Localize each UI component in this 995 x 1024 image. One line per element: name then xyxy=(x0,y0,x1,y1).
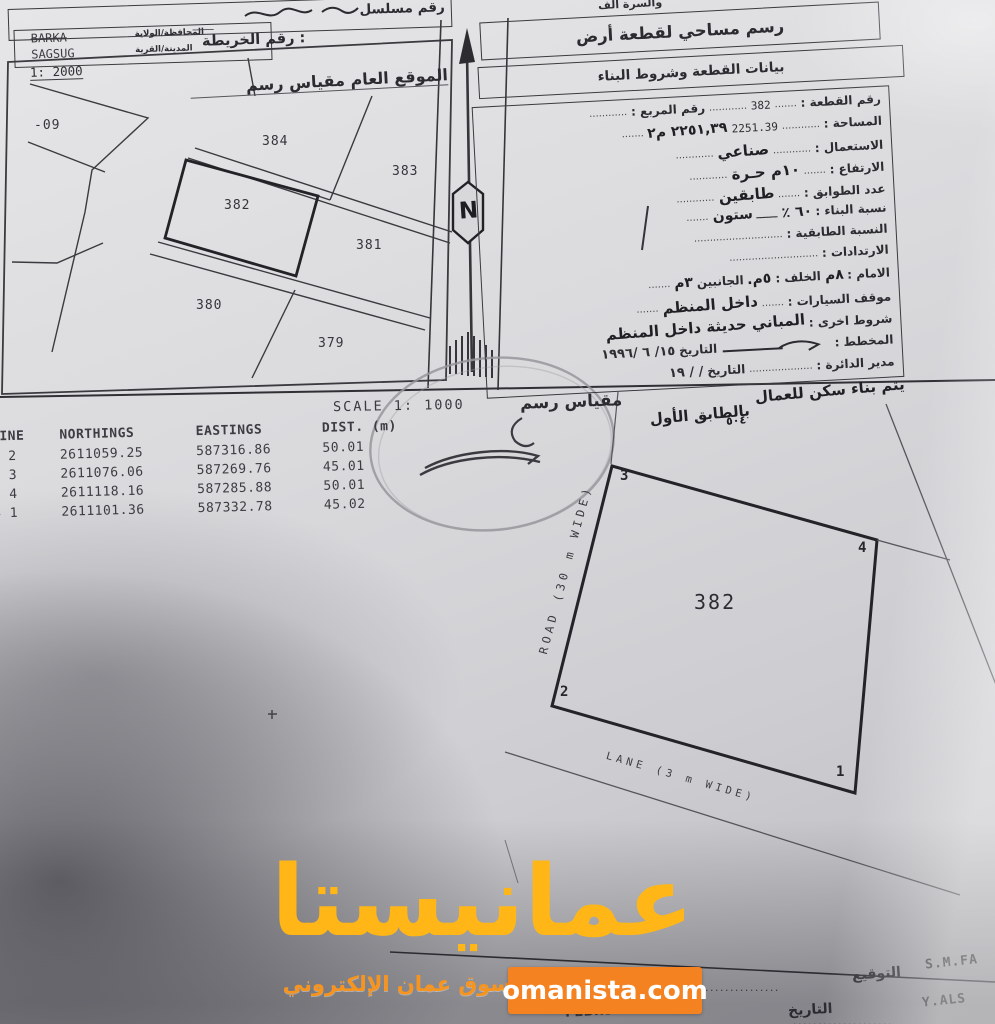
dots: ............................ xyxy=(729,248,818,264)
front-label: الامام : xyxy=(847,265,890,281)
ratio-label: نسبة البناء : xyxy=(815,201,887,219)
siteplan-label-384: 384 xyxy=(262,134,288,149)
col-header-northings: NORTHINGS xyxy=(59,424,187,442)
cell: 2 3 xyxy=(0,467,52,484)
dots: ............ xyxy=(675,149,714,162)
col-header-eastings: EASTINGS xyxy=(195,421,313,439)
dots: ....... xyxy=(621,128,644,140)
plot-corner-2: 2 xyxy=(560,684,568,700)
stamp-flourish xyxy=(420,451,540,475)
dots: ....... xyxy=(803,165,826,177)
cell: 2611118.16 xyxy=(61,482,189,500)
dots: ....... xyxy=(778,188,801,200)
front-value: ٨م xyxy=(824,267,844,284)
director-date-value: / / ١٩ xyxy=(669,364,704,381)
main-title: رسم مساحي لقطعة أرض xyxy=(575,16,784,46)
cell: 587269.76 xyxy=(196,460,314,478)
sides-label: الجانبين xyxy=(696,273,744,289)
plot-corner-3: 3 xyxy=(620,468,628,484)
floors-label: عدد الطوابق : xyxy=(804,182,886,200)
ratio-word: ستون xyxy=(712,206,753,225)
siteplan-label-09: -09 xyxy=(34,118,60,133)
dots: ....... xyxy=(761,297,784,309)
cell: 45.02 xyxy=(324,495,414,512)
siteplan-scale: 1: 2000 xyxy=(30,63,83,81)
coordinates-table: LINE NORTHINGS EASTINGS DIST. (m) 1 2 26… xyxy=(0,419,414,522)
watermark-tagline: سوق عمان الإلكتروني xyxy=(276,972,511,996)
area-label: المساحة : xyxy=(823,114,882,131)
dots: ....... xyxy=(636,304,659,316)
cell: 50.01 xyxy=(323,476,413,493)
cell: 50.01 xyxy=(322,438,412,455)
planner-date-value: ١٥/ ٦ /١٩٩٦ xyxy=(601,344,676,363)
cell: 2611059.25 xyxy=(60,444,188,462)
cell: 3 4 xyxy=(0,486,53,503)
dots: ....... xyxy=(774,98,797,110)
use-value: صناعي xyxy=(717,140,770,162)
director-date-label: التاريخ xyxy=(707,362,746,378)
siteplan-label-379: 379 xyxy=(318,336,344,351)
governorate-value: BARKA xyxy=(31,30,68,45)
siteplan-label-382: 382 xyxy=(224,198,250,213)
dots: ............ xyxy=(676,193,715,206)
siteplan-label-381: 381 xyxy=(356,238,382,253)
siteplan-plot-382-outline xyxy=(165,160,318,276)
dash: ــــــ xyxy=(756,206,778,221)
plot-number: 382 xyxy=(694,590,736,614)
planner-date-label: التاريخ xyxy=(679,342,718,358)
north-arrowhead xyxy=(459,28,475,64)
cell: 4 1 xyxy=(0,505,53,522)
dots: .................... xyxy=(749,361,813,375)
height-value: ١٠م حـرة xyxy=(730,160,800,183)
cell: 587285.88 xyxy=(197,479,315,497)
sides-value: ٣م xyxy=(674,275,694,292)
setbacks-label: الارتدادات : xyxy=(822,243,889,260)
siteplan-label-383: 383 xyxy=(392,164,418,179)
plot-corner-1: 1 xyxy=(836,764,844,780)
dots: ............ xyxy=(773,143,812,156)
dots: ............ xyxy=(589,107,628,120)
parking-label: موقف السيارات : xyxy=(787,289,891,308)
map-no-dash: ــــــــ xyxy=(192,23,213,34)
cell: 587332.78 xyxy=(197,498,315,516)
height-label: الارتفاع : xyxy=(829,160,884,177)
plus-mark xyxy=(268,710,277,719)
watermark-site-text: omanista.com xyxy=(502,976,708,1006)
floor-ratio-label: النسبة الطابقية : xyxy=(786,222,888,241)
col-header-line: LINE xyxy=(0,428,51,445)
dots: ............ xyxy=(782,119,821,132)
plot-no-label: رقم القطعة : xyxy=(800,92,881,110)
ratio-value: ٦٠ ٪ xyxy=(781,203,813,221)
siteplan-label-380: 380 xyxy=(196,298,222,313)
cell: 2611076.06 xyxy=(60,463,188,481)
use-label: الاستعمال : xyxy=(814,138,883,156)
dots: ....... xyxy=(686,212,709,224)
dots: .................... xyxy=(793,1015,893,1024)
hand-note-line3: ٥٠٤ xyxy=(725,413,746,428)
plot-no-value: 382 xyxy=(751,98,772,112)
col-header-dist: DIST. (m) xyxy=(322,419,412,436)
planner-label: المخطط : xyxy=(834,332,893,349)
area-hand: ٢٢٥١,٣٩ م٢ xyxy=(647,120,728,142)
watermark-logo: عمانيستا xyxy=(250,832,715,972)
other-label: شروط اخرى : xyxy=(808,311,892,329)
cell: 587316.86 xyxy=(196,441,314,459)
cell: 45.01 xyxy=(323,457,413,474)
town-label: المدينة/القرية xyxy=(135,43,193,55)
serial-label: رقم مسلسل xyxy=(359,0,445,18)
sub-title: بيانات القطعة وشروط البناء xyxy=(597,59,785,85)
dots: ............ xyxy=(709,101,748,114)
director-label: مدير الدائرة : xyxy=(816,354,895,372)
watermark-site-badge: omanista.com xyxy=(508,967,702,1014)
plot-corner-4: 4 xyxy=(858,540,866,556)
area-typed: 2251.39 xyxy=(731,120,778,135)
scale-note-ar: مقياس رسم xyxy=(520,390,623,413)
floors-value: طابقين xyxy=(718,184,775,206)
square-no-label: رقم المربع : xyxy=(631,101,706,119)
town-value: SAGSUG xyxy=(31,46,75,61)
signature-label: التوقيع xyxy=(852,964,902,983)
dots: ............ xyxy=(689,170,728,183)
back-label: الخلف : xyxy=(775,269,821,285)
back-value: ٥م. xyxy=(747,270,772,288)
document-photo: والسرة الف رقم مسلسل BARKA SAGSUG المحاف… xyxy=(0,0,995,1024)
parking-value: داخل المنظم xyxy=(662,292,759,317)
scale-note-en: SCALE 1: 1000 xyxy=(333,397,465,415)
dots: ............................ xyxy=(694,229,783,245)
planner-signature-scribble xyxy=(721,336,832,356)
form-box: رقم القطعة : ....... 382 ............ رق… xyxy=(472,85,905,398)
cell: 1 2 xyxy=(0,448,52,465)
dots: ....... xyxy=(648,279,671,291)
